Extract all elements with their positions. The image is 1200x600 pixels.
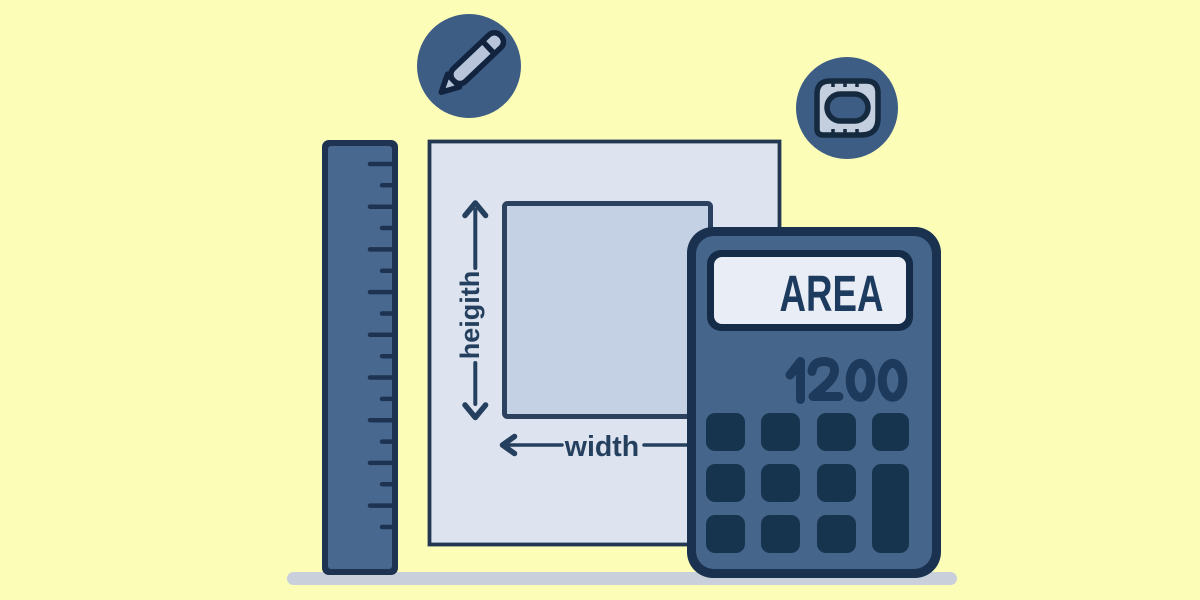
svg-text:AREA: AREA xyxy=(780,265,884,322)
svg-text:width: width xyxy=(564,431,639,463)
svg-text:heigith: heigith xyxy=(455,271,485,360)
